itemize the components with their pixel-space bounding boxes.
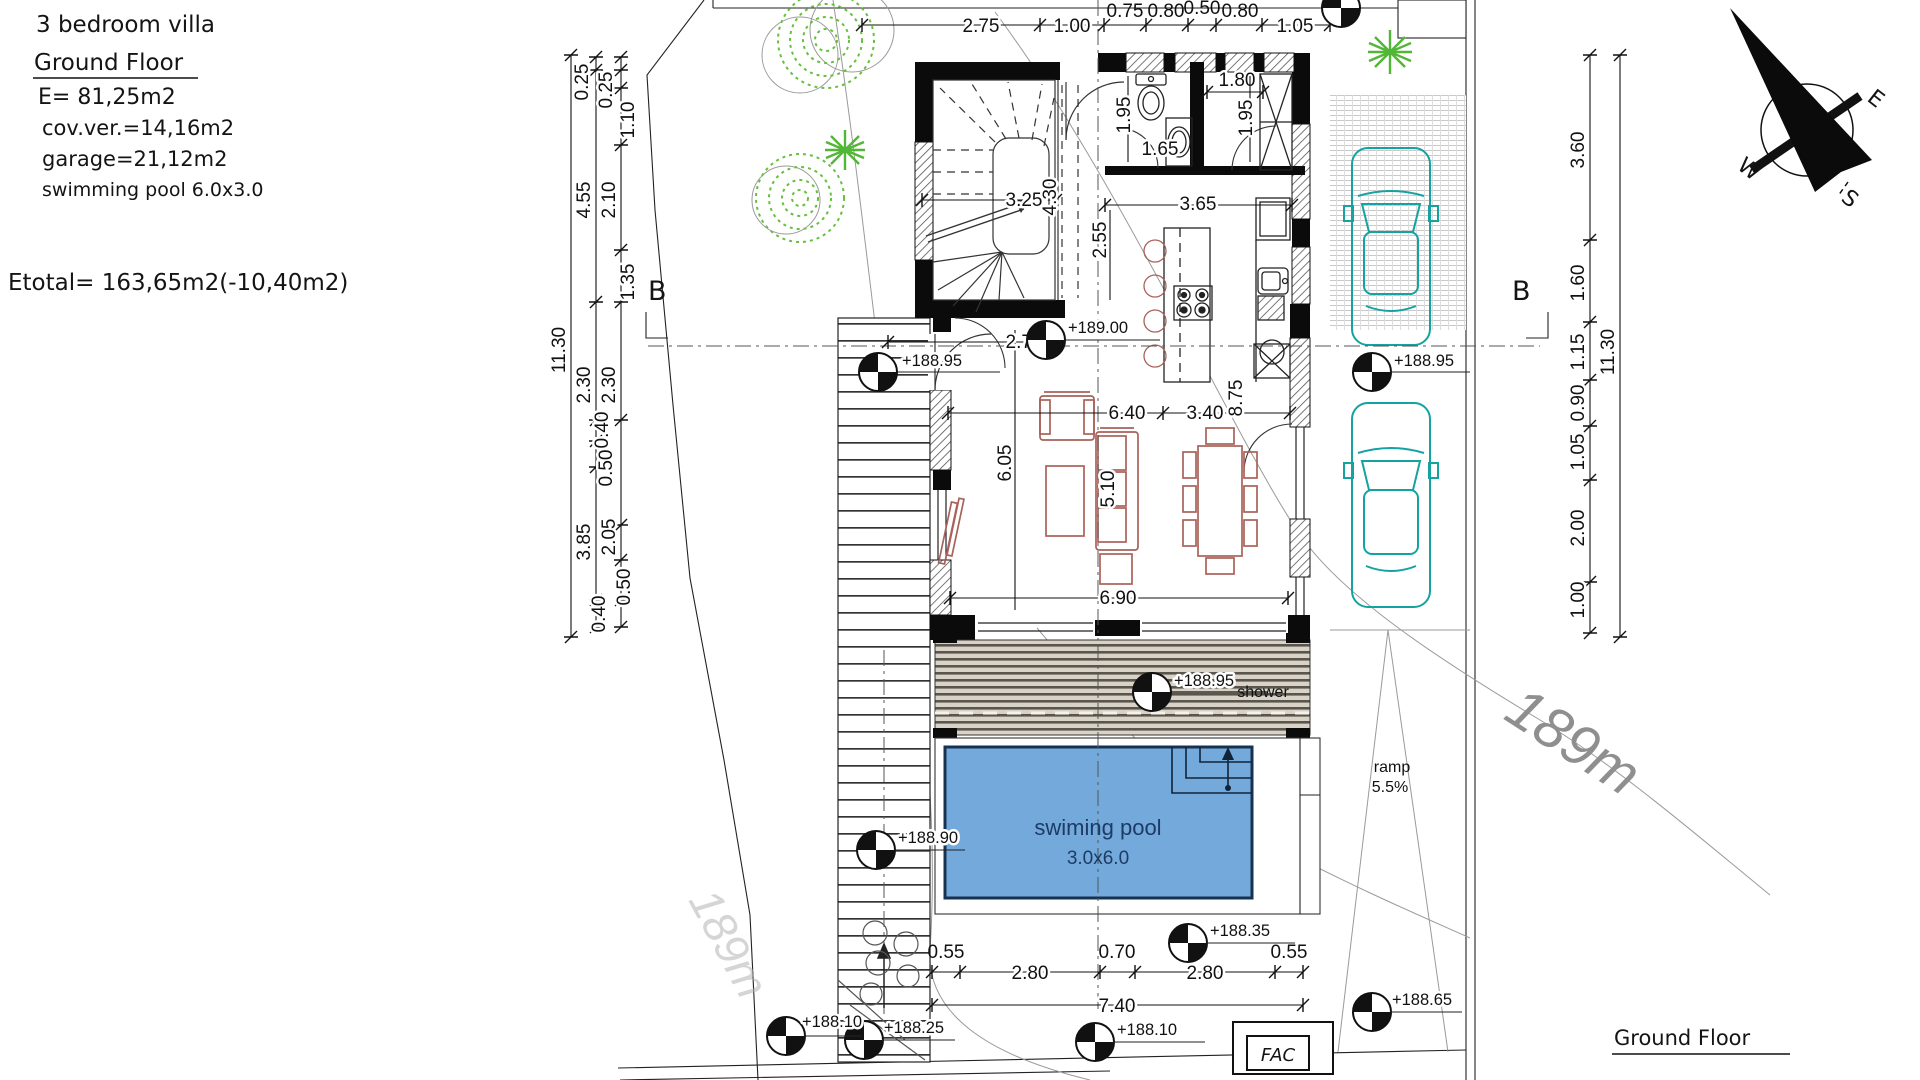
area-line: garage=21,12m2 — [42, 147, 227, 171]
kitchen-island — [1164, 228, 1212, 382]
elevation-label: +188.25 — [884, 1019, 944, 1037]
dim-label: 3.65 — [1180, 194, 1217, 215]
dim-label: 3.40 — [1187, 403, 1224, 424]
dim-label: 1.00 — [1568, 582, 1589, 619]
ramp-label: ramp — [1374, 759, 1411, 776]
elevation-label: +188.90 — [898, 829, 958, 847]
dim-label: 2.30 — [574, 367, 595, 404]
dim-label: 2.00 — [1568, 510, 1589, 547]
dim-label: 1.60 — [1568, 265, 1589, 302]
floor-plan-canvas: 189m 189m ramp 5.5% — [0, 0, 1920, 1080]
section-marker-right: B — [1512, 276, 1531, 307]
dim-label: 7.40 — [1099, 996, 1136, 1017]
dim-label: 3.85 — [574, 524, 595, 561]
dim-label: 1.95 — [1236, 100, 1257, 137]
dim-label: 11.30 — [549, 327, 570, 373]
pool-size-label: 3.0x6.0 — [1067, 848, 1129, 869]
section-marker-left: B — [648, 276, 667, 307]
dim-label: 1.95 — [1114, 97, 1135, 134]
dim-label: 6.05 — [995, 445, 1016, 482]
dim-label: 2.30 — [599, 367, 620, 404]
elevation-label: +188.95 — [902, 352, 962, 370]
toilet-icon — [1136, 74, 1166, 120]
dim-label: 0.50 — [596, 450, 617, 487]
etotal-line: Etotal= 163,65m2(-10,40m2) — [8, 270, 348, 296]
contour-label: 189m — [1495, 674, 1652, 808]
dim-label: 5.10 — [1098, 471, 1119, 508]
dim-label: 3.25 — [1006, 190, 1043, 211]
elevation-label: +188.35 — [1210, 922, 1270, 940]
pool-label: swiming pool — [1034, 815, 1161, 840]
footer-floor-title: Ground Floor — [1614, 1026, 1751, 1050]
elevation-label: +189.00 — [1068, 319, 1128, 337]
dim-label: 0.25 — [572, 64, 593, 101]
dim-label: 1.10 — [618, 102, 639, 139]
wardrobe-icon — [1260, 74, 1292, 170]
dim-label: 4.55 — [574, 182, 595, 219]
dim-label: 0.25 — [596, 72, 617, 109]
elevation-label: +188.65 — [1392, 991, 1452, 1009]
dim-label: 0.55 — [928, 942, 965, 963]
benchmark-icon: +188.10 — [1076, 1021, 1205, 1061]
ramp-percent-label: 5.5% — [1372, 779, 1408, 796]
dim-label: 0.40 — [592, 412, 613, 449]
plan-title: 3 bedroom villa — [36, 12, 215, 38]
dim-label: 1.00 — [1054, 16, 1091, 37]
dim-label: 2.10 — [599, 182, 620, 219]
dim-label: 11.30 — [1598, 329, 1619, 375]
floor-section-title: Ground Floor — [34, 50, 184, 76]
area-line: cov.ver.=14,16m2 — [42, 116, 234, 140]
car-2 — [1344, 403, 1438, 607]
shrub-icon — [825, 130, 865, 170]
elevation-label: +188.95 — [1394, 352, 1454, 370]
dim-label: 0.70 — [1099, 942, 1136, 963]
dim-label: 6.40 — [1109, 403, 1146, 424]
benchmark-icon: +188.95 — [1353, 352, 1470, 391]
dim-label: 0.50 — [614, 569, 635, 606]
dim-label: 1.15 — [1568, 334, 1589, 371]
bar-stools — [1144, 240, 1166, 367]
benchmark-icon: +189.00 — [1027, 319, 1160, 359]
compass-west-label: W — [1732, 153, 1765, 186]
benchmark-icon — [1322, 0, 1360, 27]
compass: E W S — [1730, 8, 1889, 213]
area-line: swimming pool 6.0x3.0 — [42, 179, 263, 201]
dining-set — [1183, 428, 1257, 574]
benchmark-icon: +188.65 — [1353, 991, 1462, 1031]
dim-label: 0.80 — [1148, 1, 1185, 22]
elevation-label: +188.10 — [1117, 1021, 1177, 1039]
ramp-lines — [1338, 630, 1448, 1052]
dims-right: 3.60 1.60 1.15 0.90 1.05 2.00 1.00 11.30 — [1568, 49, 1627, 643]
oven-icon — [1254, 344, 1290, 378]
dim-label: 1.65 — [1142, 139, 1179, 160]
tree-large — [762, 0, 894, 93]
contour-label-faint: 189m — [679, 880, 779, 1006]
elevation-label: +188.10 — [802, 1013, 862, 1031]
footer-label: Ground Floor — [1612, 1026, 1790, 1054]
ottoman — [1100, 554, 1132, 584]
dim-label: 2.80 — [1012, 963, 1049, 984]
armchair — [1040, 392, 1094, 440]
dim-label: 0.50 — [1184, 0, 1221, 19]
kitchen — [1144, 198, 1290, 382]
dim-label: 2.80 — [1187, 963, 1224, 984]
sink-icon — [1258, 268, 1288, 294]
dims-top: 2.75 1.00 0.75 0.80 0.50 0.80 1.05 — [856, 0, 1360, 37]
dim-label: 2.05 — [599, 519, 620, 556]
deck: shower — [933, 633, 1310, 738]
dims-left: 0.25 0.25 1.10 4.55 2.10 1.35 11.30 2.30… — [549, 49, 639, 643]
walkway-steps — [838, 318, 930, 1062]
utility-box: FAC — [1233, 1022, 1333, 1074]
dim-label: 2.75 — [963, 16, 1000, 37]
dim-label: 1.05 — [1568, 434, 1589, 471]
tv-board — [939, 498, 964, 564]
dim-label: 0.80 — [1222, 1, 1259, 22]
dims-bottom: 0.55 2.80 0.70 2.80 0.55 7.40 — [926, 942, 1309, 1017]
dim-label: 0.55 — [1271, 942, 1308, 963]
dim-label: 8.75 — [1226, 380, 1247, 417]
dim-label: 1.35 — [618, 264, 639, 301]
fridge-icon — [1256, 198, 1290, 240]
compass-south-label: S — [1836, 185, 1862, 213]
dim-label: 0.75 — [1107, 1, 1144, 22]
elevation-label: +188.95 — [1174, 672, 1234, 690]
dim-label: 4.30 — [1040, 179, 1061, 216]
utility-box-label: FAC — [1261, 1045, 1296, 1066]
dim-label: 0.40 — [589, 596, 610, 633]
dim-label: 3.60 — [1568, 132, 1589, 169]
dishwasher-icon — [1258, 296, 1284, 320]
dim-label: 6.90 — [1100, 588, 1137, 609]
area-line: E= 81,25m2 — [38, 85, 176, 110]
dim-label: 1.05 — [1277, 16, 1314, 37]
dim-label: 0.90 — [1568, 385, 1589, 422]
compass-east-label: E — [1862, 85, 1888, 113]
coffee-table — [1046, 466, 1084, 536]
dim-label: 2.55 — [1090, 222, 1111, 259]
tree-medium — [752, 154, 844, 242]
info-block: 3 bedroom villa Ground Floor E= 81,25m2 … — [8, 12, 348, 296]
